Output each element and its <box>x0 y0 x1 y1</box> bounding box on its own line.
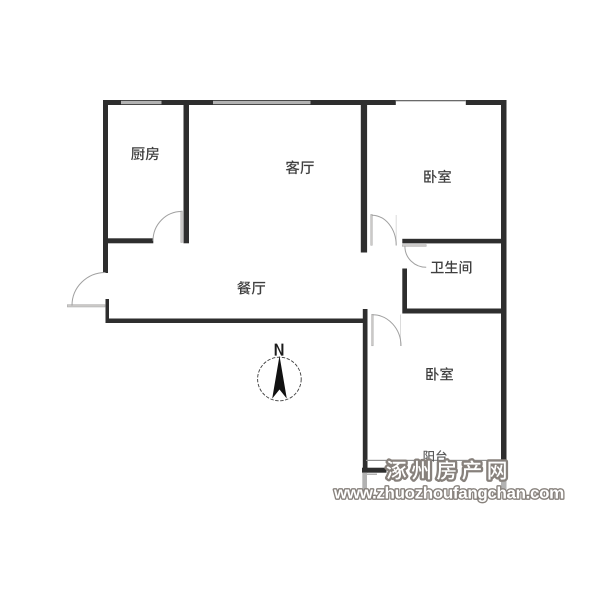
svg-text:www.zhuozhoufangchan.com: www.zhuozhoufangchan.com <box>333 484 564 503</box>
